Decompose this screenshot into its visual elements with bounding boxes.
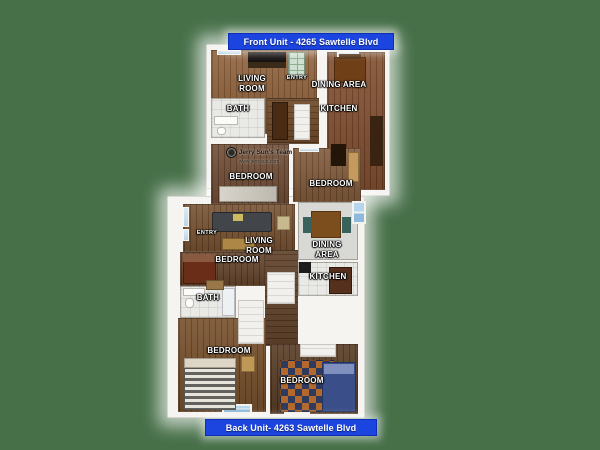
floor-plan-image: Front Unit - 4265 Sawtelle Blvd ENTRY LI… [0,0,600,450]
back-unit-banner-label: Back Unit- 4263 Sawtelle Blvd [226,423,356,433]
back-bath-label: BATH [186,293,230,303]
sofa-pillow-icon [233,214,243,221]
watermark-name: Jerry Sun's Team [239,149,292,156]
front-bedroom-right-label: BEDROOM [303,179,359,189]
back-unit-banner: Back Unit- 4263 Sawtelle Blvd [205,419,377,436]
back-living-window2-icon [183,229,189,241]
back-hall-closet-icon [267,272,295,304]
tv-icon [248,52,286,62]
front-kitchen-label: KITCHEN [310,104,368,114]
front-bed-icon [219,186,277,202]
back-kitchen-label: KITCHEN [300,272,356,282]
front-bedroom-right-window-icon [299,148,319,152]
jerry-sun-team-logo-icon [226,147,237,158]
front-dining-chairs-icon [339,54,361,59]
front-unit-banner-label: Front Unit - 4265 Sawtelle Blvd [244,37,379,47]
front-hall-door-icon [272,102,288,140]
back-dining-table-icon [311,211,341,238]
back-entry-label: ENTRY [192,230,222,237]
front-dining-area-label: DINING AREA [310,80,368,90]
back-bedroom-bottom-left-label: BEDROOM [202,346,256,356]
back-bedroom-top-label: BEDROOM [210,255,264,265]
watermark-website: www.jerrysun.com [224,159,294,165]
front-unit-banner: Front Unit - 4265 Sawtelle Blvd [228,33,394,50]
back-bedroom-dresser-icon [300,344,336,357]
striped-bed-pillow-icon [184,358,236,368]
nightstand-icon [241,356,255,372]
front-bath-label: BATH [211,104,265,114]
front-toilet-icon [217,127,226,135]
watermark: Jerry Sun's Team www.jerrysun.com [224,147,294,165]
front-bedroom-left-label: BEDROOM [223,172,279,182]
front-fridge-icon [331,144,346,166]
front-kitchen-counter-icon [370,116,383,166]
front-bath-vanity-icon [214,116,238,125]
front-bedroom-right-closet-icon [348,152,359,182]
back-dining-area-label: DINING AREA [302,240,352,259]
armchair-icon [277,216,290,230]
back-mid-closet-icon [238,300,264,344]
back-living-room-label: LIVING ROOM [236,236,282,255]
tv-console-icon [248,62,286,68]
front-hall-dresser-icon [294,104,310,140]
front-living-room-label: LIVING ROOM [225,74,279,93]
back-living-window-icon [183,207,189,227]
back-bedroom-bottom-right-label: BEDROOM [276,376,328,386]
front-living-window-icon [217,50,241,55]
back-bath-mirror-icon [206,280,224,290]
dining-chair-left-icon [303,217,312,233]
blue-bed-pillow-icon [324,364,354,374]
striped-bed-icon [184,368,236,410]
dining-chair-right-icon [342,217,351,233]
front-entry-label: ENTRY [282,75,312,82]
back-dining-bay-window-icon [352,201,366,224]
